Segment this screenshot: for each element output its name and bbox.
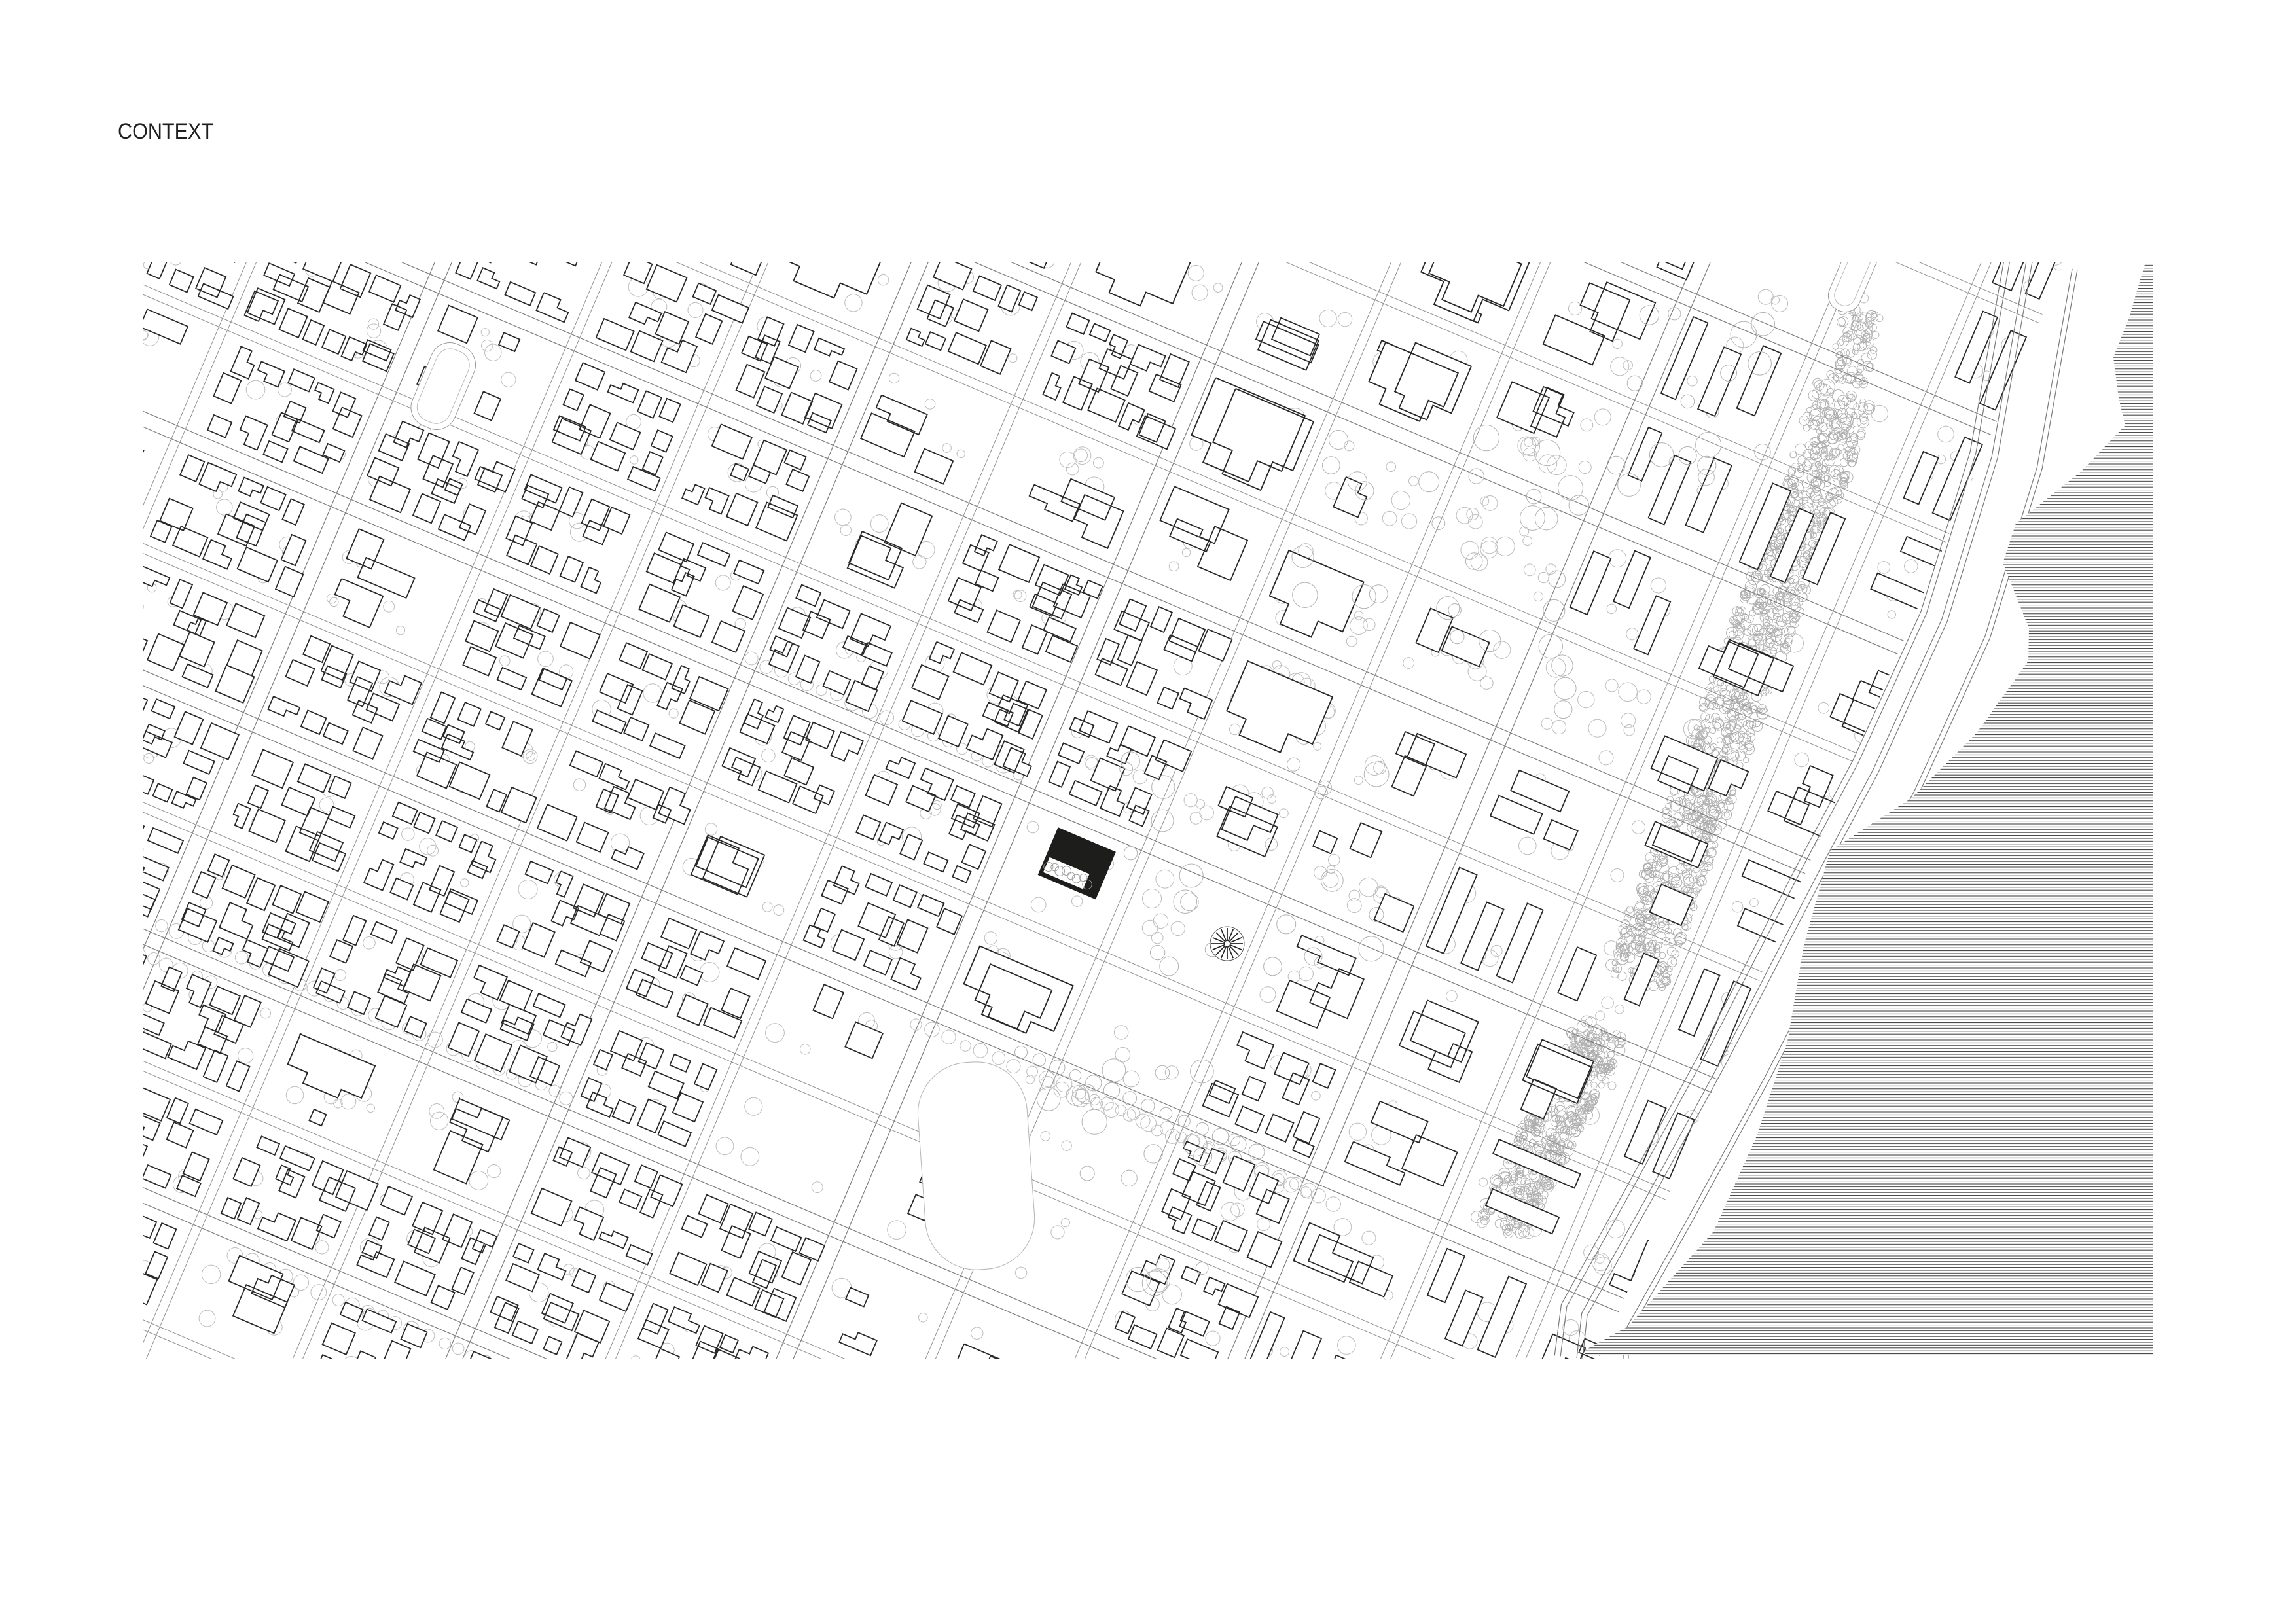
svg-text:CONTEXT: CONTEXT [118,119,213,144]
